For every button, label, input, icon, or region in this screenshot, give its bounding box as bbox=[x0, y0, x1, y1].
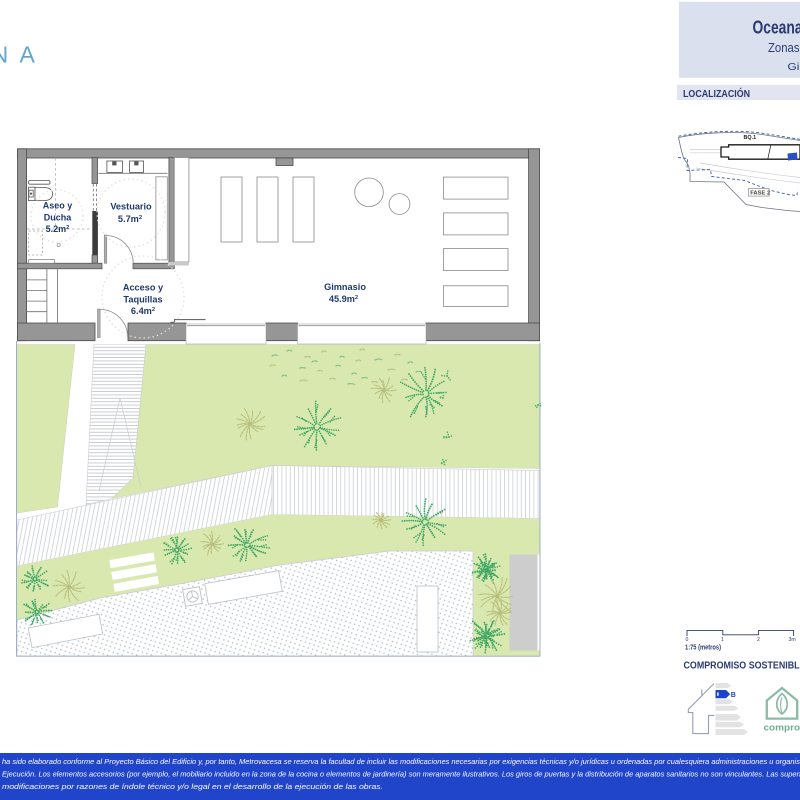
svg-text:Gimnasio: Gimnasio bbox=[788, 61, 800, 73]
svg-text:Taquillas: Taquillas bbox=[123, 295, 162, 305]
svg-text:COMPROMISO SOSTENIBLE: COMPROMISO SOSTENIBLE bbox=[684, 661, 800, 672]
svg-text:2: 2 bbox=[757, 637, 760, 643]
svg-text:NA: NA bbox=[0, 42, 46, 68]
svg-text:5.2m2: 5.2m2 bbox=[46, 224, 70, 234]
svg-text:Ducha: Ducha bbox=[44, 213, 73, 223]
svg-text:1: 1 bbox=[721, 637, 724, 643]
svg-text:FASE 2: FASE 2 bbox=[750, 191, 770, 197]
svg-text:6.4m2: 6.4m2 bbox=[131, 306, 155, 316]
svg-text:ha sido elaborado conforme al: ha sido elaborado conforme al Proyecto B… bbox=[2, 757, 800, 766]
svg-text:Aseo y: Aseo y bbox=[43, 201, 73, 211]
svg-text:B: B bbox=[731, 692, 736, 699]
svg-text:Gimnasio: Gimnasio bbox=[324, 282, 366, 292]
svg-text:45.9m2: 45.9m2 bbox=[329, 294, 358, 304]
svg-text:3m: 3m bbox=[789, 637, 796, 643]
svg-text:Oceana: Oceana bbox=[753, 17, 800, 38]
svg-text:compromiso: compromiso bbox=[764, 723, 800, 733]
svg-text:Zonas: Zonas bbox=[768, 40, 800, 55]
svg-text:Ejecución. Los elementos acces: Ejecución. Los elementos accesorios (por… bbox=[2, 770, 800, 779]
svg-text:1:75 (metros): 1:75 (metros) bbox=[685, 643, 721, 652]
svg-text:Vestuario: Vestuario bbox=[110, 202, 152, 212]
svg-text:BQ.1: BQ.1 bbox=[744, 135, 757, 141]
svg-text:Acceso y: Acceso y bbox=[123, 283, 164, 293]
svg-text:modificaciones por razones de: modificaciones por razones de índole téc… bbox=[2, 782, 383, 791]
svg-text:5.7m2: 5.7m2 bbox=[118, 214, 142, 224]
svg-text:LOCALIZACIÓN: LOCALIZACIÓN bbox=[683, 87, 750, 100]
